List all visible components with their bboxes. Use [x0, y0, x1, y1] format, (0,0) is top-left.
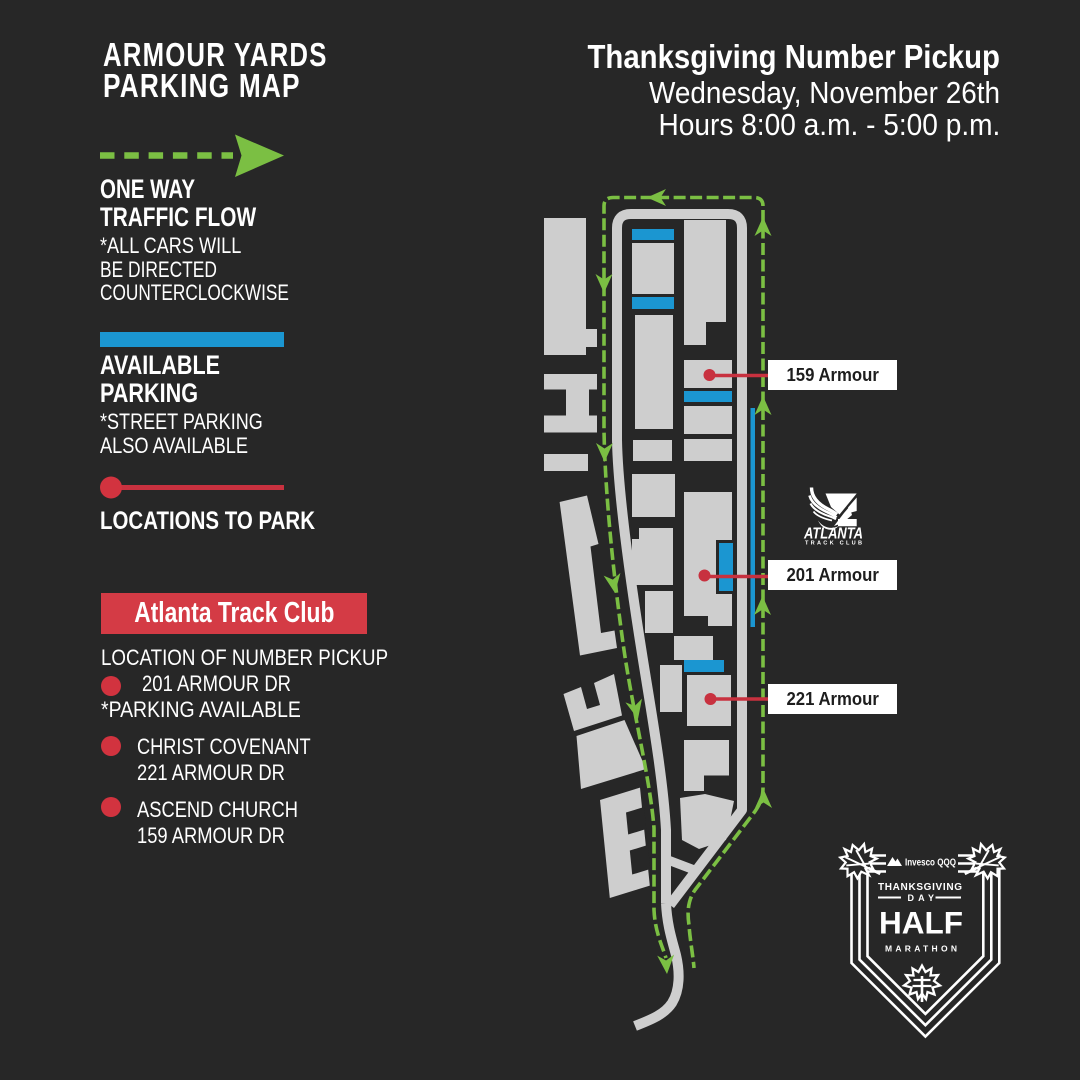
- svg-text:DAY: DAY: [908, 893, 935, 903]
- svg-text:Invesco QQQ: Invesco QQQ: [905, 857, 956, 869]
- svg-text:TRACK CLUB: TRACK CLUB: [805, 541, 862, 547]
- svg-text:MARATHON: MARATHON: [885, 944, 957, 954]
- svg-text:HALF: HALF: [879, 905, 963, 941]
- svg-text:THANKSGIVING: THANKSGIVING: [878, 882, 962, 893]
